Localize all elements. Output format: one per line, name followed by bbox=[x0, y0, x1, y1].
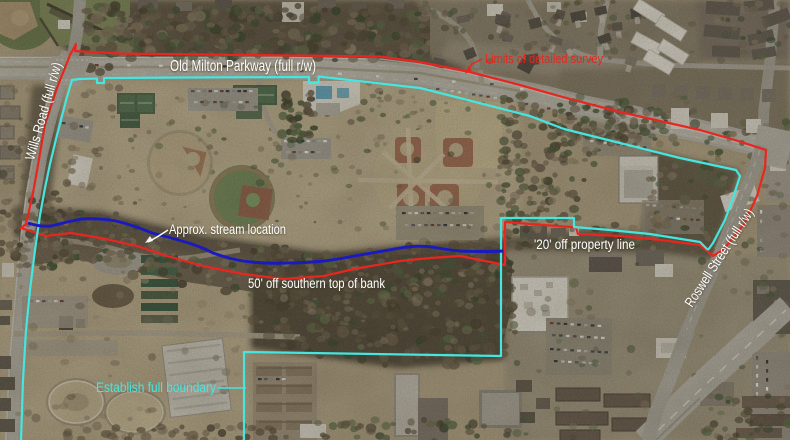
svg-text:'20' off property line: '20' off property line bbox=[534, 237, 635, 252]
svg-text:Old Milton Parkway (full r/w): Old Milton Parkway (full r/w) bbox=[170, 58, 316, 75]
svg-text:50' off southern top of bank: 50' off southern top of bank bbox=[248, 276, 385, 291]
svg-text:Approx. stream location: Approx. stream location bbox=[169, 222, 286, 237]
svg-text:Establish full boundary: Establish full boundary bbox=[96, 380, 216, 395]
svg-text:Limits of detailed survey: Limits of detailed survey bbox=[485, 51, 603, 66]
